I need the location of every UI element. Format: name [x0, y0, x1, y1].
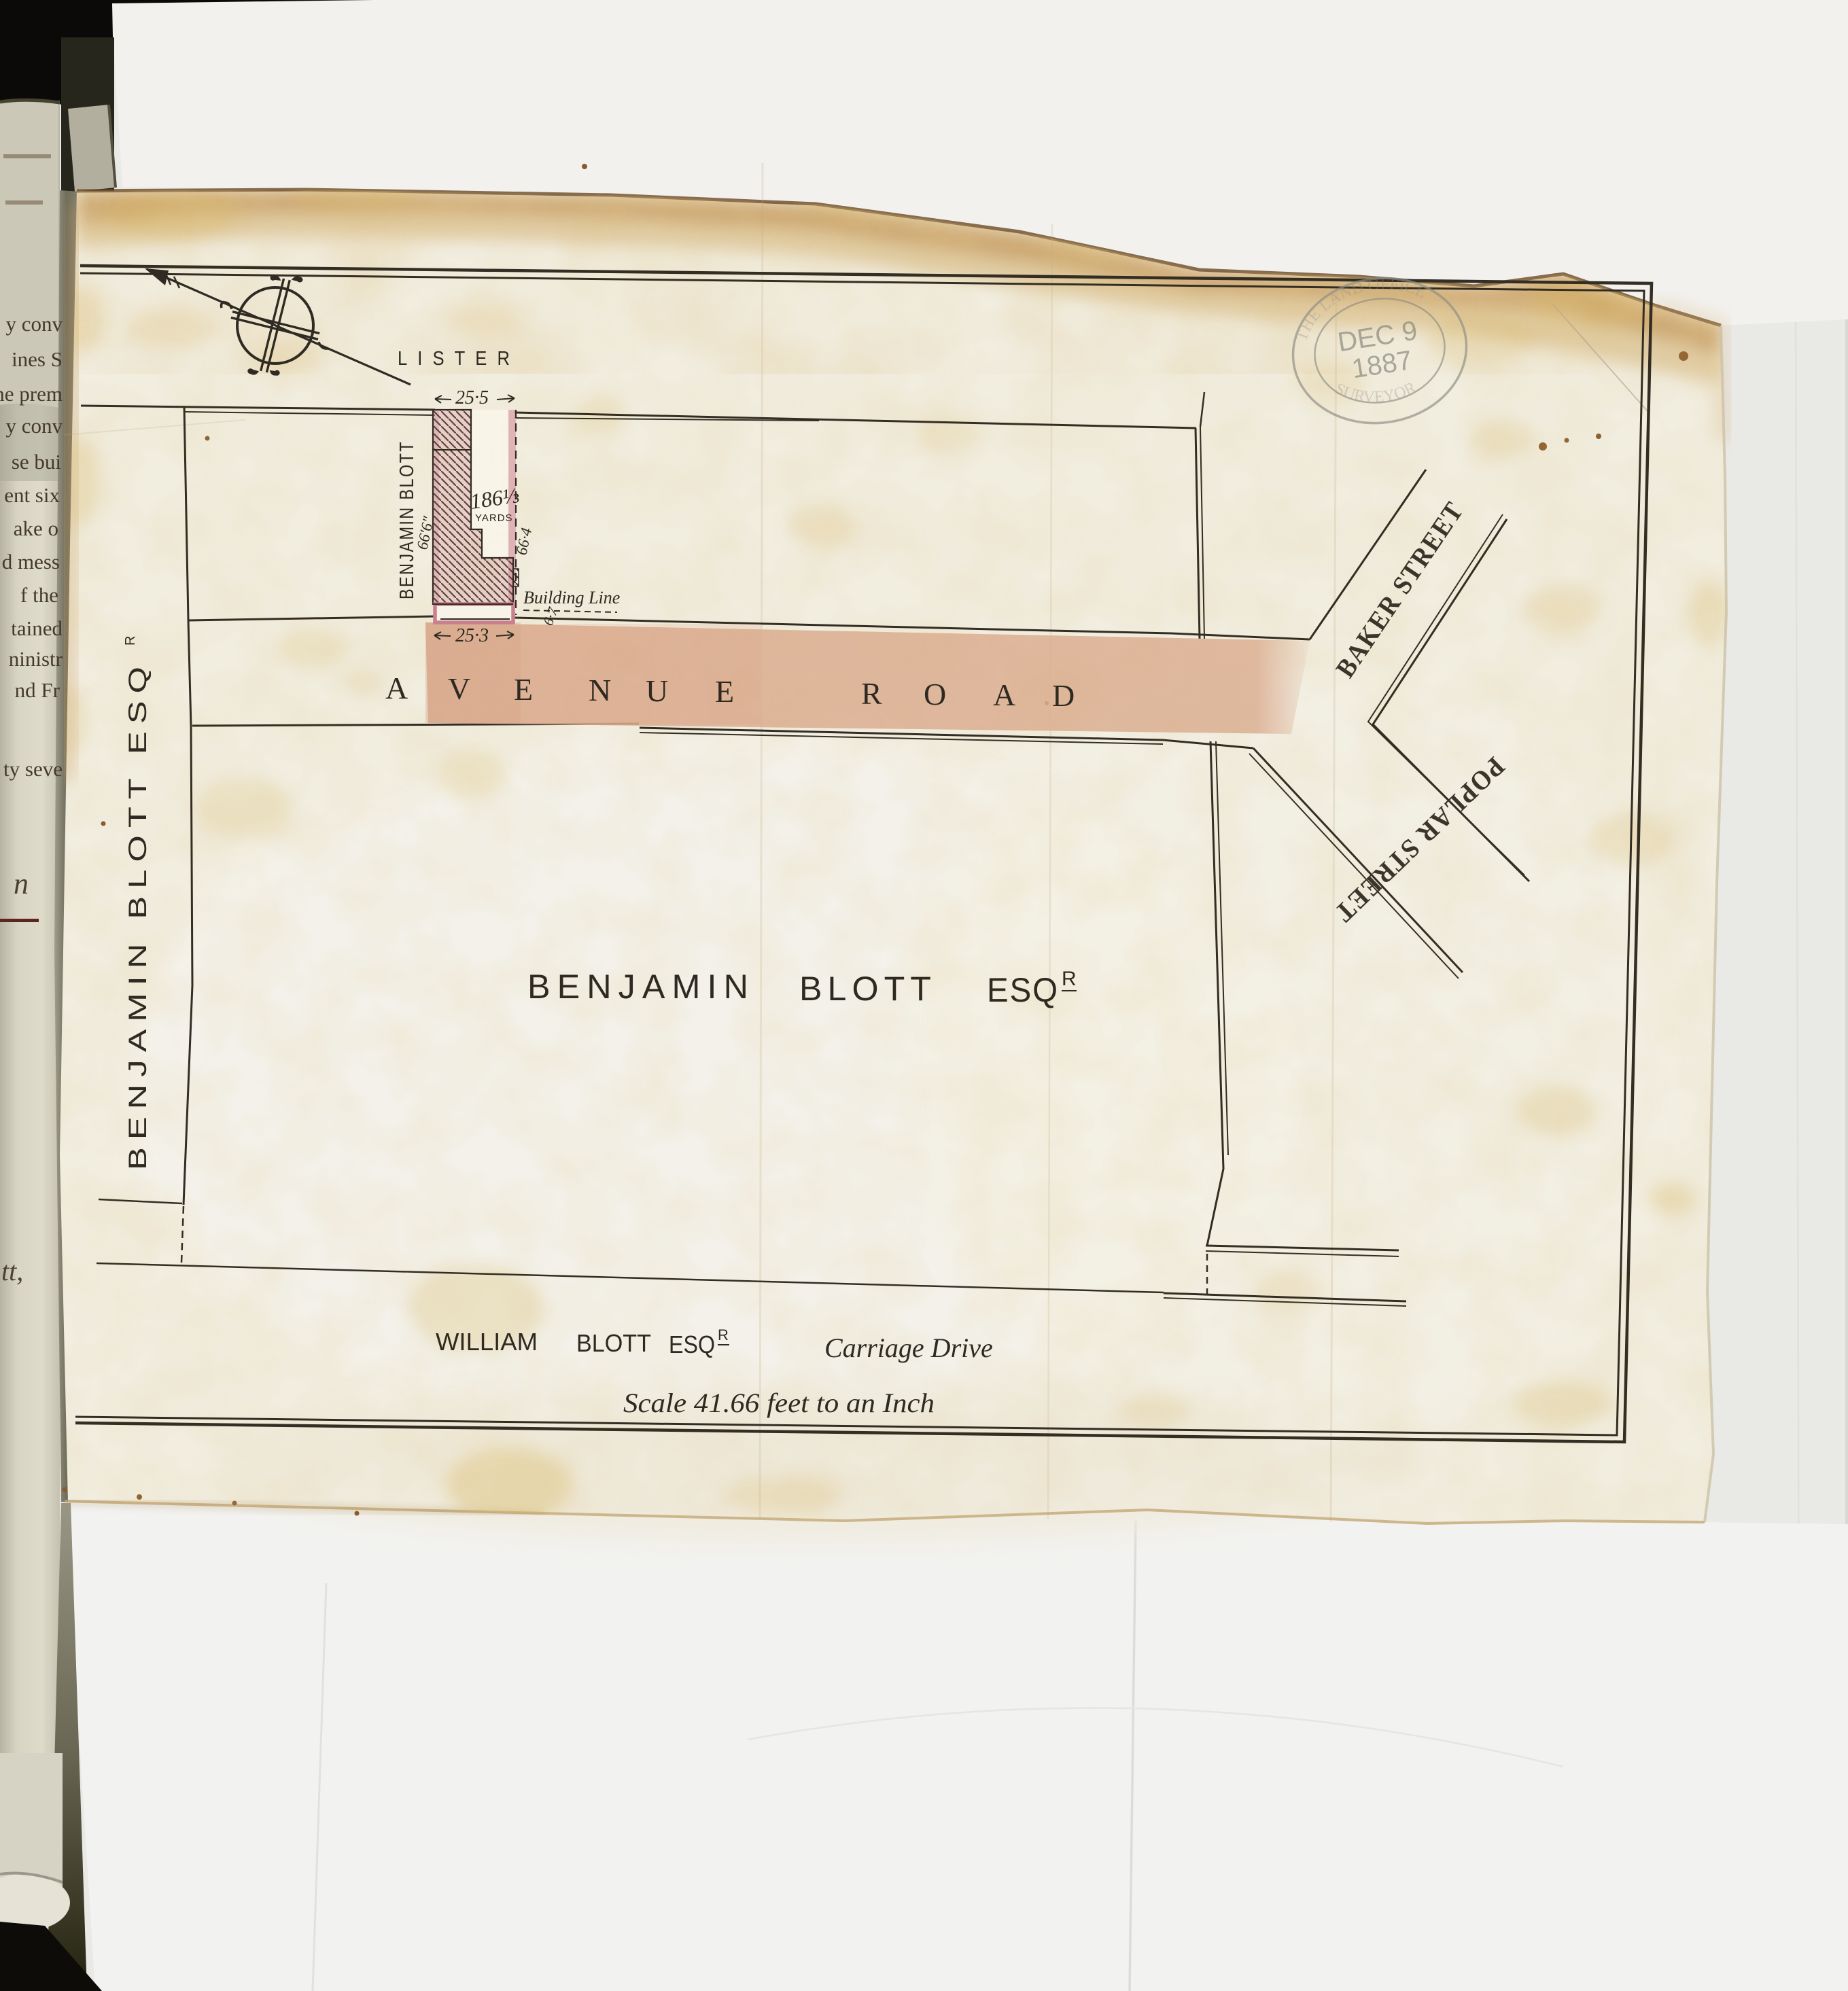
svg-text:tt,: tt, [1, 1256, 23, 1286]
svg-text:BLOTT: BLOTT [576, 1329, 651, 1357]
svg-text:WILLIAM: WILLIAM [436, 1328, 538, 1356]
svg-text:y conv: y conv [5, 312, 63, 336]
svg-text:Scale 41.66 feet to an Inch: Scale 41.66 feet to an Inch [623, 1388, 935, 1418]
svg-text:ne prem: ne prem [0, 382, 63, 406]
svg-text:ty seve: ty seve [3, 757, 63, 781]
svg-text:R: R [861, 676, 882, 711]
svg-text:N: N [589, 673, 611, 707]
svg-text:d mess: d mess [2, 550, 60, 574]
svg-text:E: E [715, 674, 734, 709]
svg-text:BENJAMIN: BENJAMIN [527, 968, 755, 1006]
svg-text:Building Line: Building Line [523, 588, 620, 607]
svg-text:R: R [123, 636, 138, 646]
svg-text:R: R [1062, 968, 1077, 990]
svg-text:ines S: ines S [12, 347, 63, 371]
svg-text:Carriage Drive: Carriage Drive [824, 1333, 993, 1363]
svg-text:tained: tained [11, 616, 63, 640]
svg-text:BLOTT: BLOTT [799, 970, 937, 1008]
svg-text:LISTER: LISTER [398, 348, 520, 370]
svg-text:nd Fr: nd Fr [15, 678, 60, 702]
svg-text:A: A [993, 677, 1015, 712]
svg-text:se bui: se bui [12, 450, 62, 474]
svg-text:D: D [1052, 678, 1075, 713]
svg-text:V: V [448, 671, 470, 706]
svg-text:25·5: 25·5 [455, 387, 489, 408]
svg-text:E: E [514, 672, 533, 707]
svg-text:A: A [385, 671, 408, 705]
svg-text:n: n [14, 867, 29, 900]
svg-text:BENJAMIN BLOTT ESQ: BENJAMIN BLOTT ESQ [124, 659, 152, 1170]
svg-text:25·3: 25·3 [455, 625, 489, 646]
svg-text:ESQ: ESQ [987, 971, 1059, 1009]
svg-text:f the: f the [20, 583, 58, 607]
svg-text:y conv: y conv [5, 414, 63, 438]
svg-text:ESQ: ESQ [669, 1331, 715, 1358]
svg-text:ent six: ent six [4, 483, 60, 507]
svg-text:R: R [718, 1326, 729, 1343]
svg-text:ninistr: ninistr [9, 647, 63, 671]
svg-text:ake o: ake o [14, 516, 58, 540]
svg-text:U: U [646, 673, 668, 708]
svg-text:O: O [924, 677, 946, 711]
svg-text:YARDS: YARDS [475, 512, 513, 524]
svg-text:BENJAMIN BLOTT: BENJAMIN BLOTT [396, 440, 418, 599]
